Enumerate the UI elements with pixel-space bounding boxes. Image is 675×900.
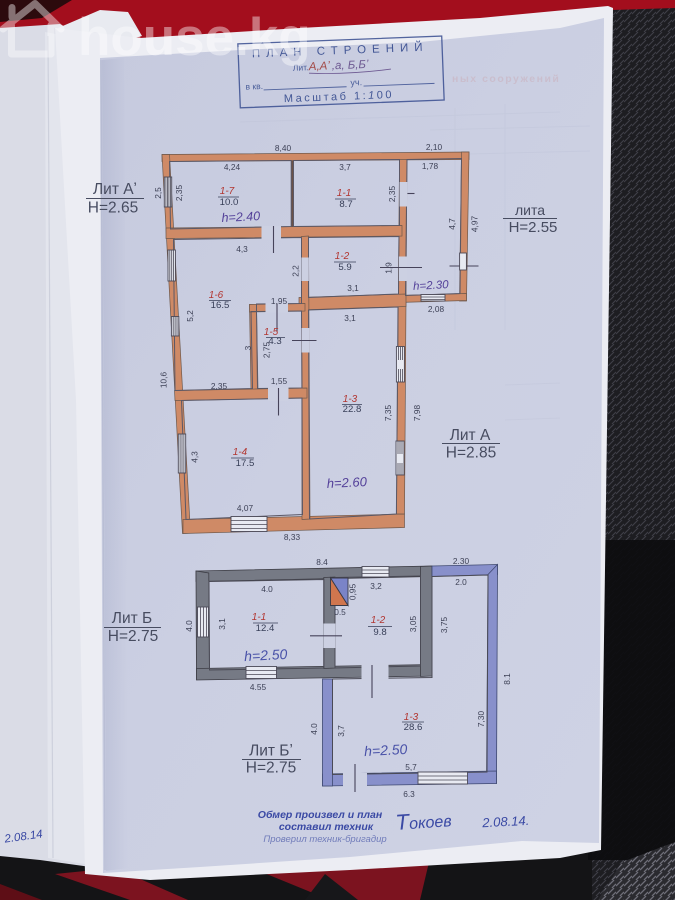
svg-text:Н=2.55: Н=2.55 — [509, 219, 558, 236]
svg-text:house.kg: house.kg — [78, 8, 311, 67]
svg-text:4,7: 4,7 — [447, 218, 457, 230]
svg-text:2,08: 2,08 — [428, 304, 445, 314]
svg-text:5,7: 5,7 — [405, 762, 417, 772]
svg-text:2,35: 2,35 — [387, 186, 397, 203]
svg-text:4,3: 4,3 — [236, 244, 248, 254]
svg-text:3,1: 3,1 — [217, 618, 227, 630]
svg-text:2,35: 2,35 — [211, 381, 228, 391]
svg-text:h=2.60: h=2.60 — [326, 474, 368, 491]
svg-text:2,2: 2,2 — [291, 265, 301, 277]
svg-text:4,3: 4,3 — [190, 451, 200, 463]
svg-text:8.7: 8.7 — [339, 199, 352, 210]
svg-text:h=2.50: h=2.50 — [244, 646, 288, 664]
svg-text:1-2: 1-2 — [335, 251, 350, 262]
svg-text:1-1: 1-1 — [337, 188, 351, 199]
svg-text:Проверил техник-бригадир: Проверил техник-бригадир — [263, 834, 386, 845]
svg-text:8,33: 8,33 — [284, 532, 301, 542]
svg-text:5,2: 5,2 — [185, 310, 195, 322]
svg-text:1,78: 1,78 — [422, 161, 439, 171]
svg-text:8,40: 8,40 — [275, 143, 292, 153]
svg-text:2.0: 2.0 — [455, 577, 467, 587]
svg-text:h=2.50: h=2.50 — [364, 741, 408, 759]
svg-text:10.0: 10.0 — [220, 197, 239, 208]
svg-text:h=2.40: h=2.40 — [221, 209, 260, 225]
svg-text:12.4: 12.4 — [256, 623, 275, 634]
svg-text:Н=2.65: Н=2.65 — [88, 200, 138, 217]
svg-text:7,30: 7,30 — [476, 711, 486, 728]
svg-text:7,35: 7,35 — [383, 405, 393, 422]
svg-text:h=2.30: h=2.30 — [413, 279, 450, 293]
svg-text:лита: лита — [515, 202, 545, 218]
svg-text:8.4: 8.4 — [316, 557, 328, 567]
svg-text:3,7: 3,7 — [339, 162, 351, 172]
svg-text:1-2: 1-2 — [371, 615, 386, 626]
svg-text:,а, Б,Бʼ: ,а, Б,Бʼ — [332, 59, 370, 72]
svg-text:2.08.14.: 2.08.14. — [481, 813, 530, 830]
svg-text:0,95: 0,95 — [348, 583, 358, 600]
svg-text:2,5: 2,5 — [153, 187, 163, 199]
svg-text:0.5: 0.5 — [334, 607, 346, 617]
svg-text:Обмер произвел и план: Обмер произвел и план — [258, 809, 383, 821]
svg-text:4,07: 4,07 — [237, 503, 254, 513]
svg-text:8.1: 8.1 — [502, 673, 512, 685]
svg-text:17.5: 17.5 — [236, 458, 255, 469]
svg-text:ных сооружений: ных сооружений — [452, 73, 560, 85]
svg-text:3: 3 — [243, 345, 253, 350]
svg-text:4.0: 4.0 — [309, 723, 319, 735]
svg-text:3,05: 3,05 — [408, 616, 418, 633]
svg-text:3,1: 3,1 — [347, 283, 359, 293]
svg-text:1-7: 1-7 — [220, 186, 235, 197]
svg-text:1-4: 1-4 — [233, 447, 248, 458]
svg-text:уч.: уч. — [350, 77, 362, 87]
svg-text:16.5: 16.5 — [211, 300, 230, 311]
svg-text:Лит Аʼ: Лит Аʼ — [93, 181, 137, 198]
svg-text:2.30: 2.30 — [453, 556, 470, 566]
svg-text:7,98: 7,98 — [412, 405, 422, 422]
svg-text:4,24: 4,24 — [224, 162, 241, 172]
svg-text:2,10: 2,10 — [426, 142, 443, 152]
svg-text:10,6: 10,6 — [159, 372, 169, 389]
svg-text:Н=2.75: Н=2.75 — [246, 760, 296, 777]
svg-text:9.8: 9.8 — [373, 627, 386, 638]
svg-text:1,55: 1,55 — [271, 376, 288, 386]
svg-text:5.9: 5.9 — [338, 262, 351, 273]
svg-text:4.0: 4.0 — [261, 584, 273, 594]
svg-text:3,1: 3,1 — [344, 313, 356, 323]
svg-text:4,97: 4,97 — [470, 216, 480, 233]
svg-text:2,35: 2,35 — [174, 185, 184, 202]
svg-text:22.8: 22.8 — [343, 404, 362, 415]
svg-text:1,9: 1,9 — [384, 262, 394, 274]
svg-text:4.0: 4.0 — [184, 620, 194, 632]
svg-text:Лит Бʼ: Лит Бʼ — [249, 743, 293, 760]
svg-text:А,Аʼ: А,Аʼ — [308, 60, 331, 73]
svg-text:Лит Б: Лит Б — [112, 610, 152, 627]
svg-text:в кв.: в кв. — [245, 81, 263, 92]
svg-text:6.3: 6.3 — [403, 789, 415, 799]
svg-text:Н=2.75: Н=2.75 — [108, 628, 158, 645]
svg-text:Н=2.85: Н=2.85 — [446, 445, 496, 462]
svg-text:1-1: 1-1 — [252, 612, 266, 623]
svg-text:составил техник: составил техник — [279, 821, 374, 833]
svg-text:3,75: 3,75 — [439, 617, 449, 634]
svg-text:4.55: 4.55 — [250, 682, 267, 692]
svg-text:28.6: 28.6 — [404, 722, 423, 733]
svg-text:3,7: 3,7 — [336, 725, 346, 737]
svg-text:3,2: 3,2 — [370, 581, 382, 591]
svg-text:Лит А: Лит А — [450, 427, 491, 444]
svg-text:1,95: 1,95 — [271, 296, 288, 306]
